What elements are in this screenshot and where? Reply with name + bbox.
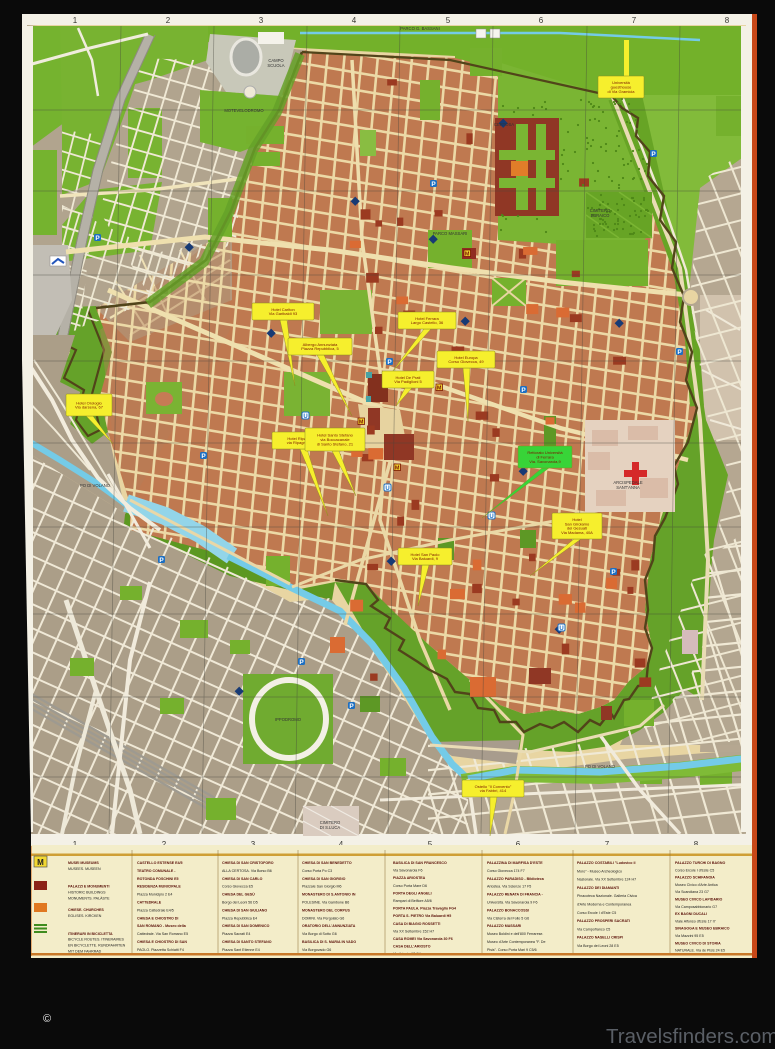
svg-text:Corso Porta Mare D6: Corso Porta Mare D6 — [393, 884, 427, 888]
svg-text:MONASTERO DI S.ANTONIO IN: MONASTERO DI S.ANTONIO IN — [302, 893, 356, 897]
svg-text:7: 7 — [632, 16, 637, 25]
svg-text:CHIESA E CHIOSTRO DI SAN: CHIESA E CHIOSTRO DI SAN — [137, 940, 187, 944]
svg-text:Via Baluardi, 9: Via Baluardi, 9 — [412, 556, 439, 561]
svg-text:MOTEVELODROMO: MOTEVELODROMO — [224, 108, 264, 113]
svg-text:8: 8 — [725, 16, 730, 25]
svg-text:CHIESA DI SANTO STEFANO: CHIESA DI SANTO STEFANO — [222, 940, 272, 944]
svg-text:HISTORIC BUILDINGS: HISTORIC BUILDINGS — [68, 891, 106, 895]
svg-text:Piazza Repubblica, 5: Piazza Repubblica, 5 — [301, 346, 339, 351]
svg-text:PARCO MASSARI: PARCO MASSARI — [433, 231, 468, 236]
svg-text:TEATRO COMUNALE -: TEATRO COMUNALE - — [137, 869, 176, 873]
svg-text:P: P — [95, 235, 100, 242]
svg-text:DI S.LUCA: DI S.LUCA — [320, 825, 341, 830]
svg-text:Piazza Sacrati E4: Piazza Sacrati E4 — [222, 932, 250, 936]
svg-text:CHIESE. CHURCHES: CHIESE. CHURCHES — [68, 908, 104, 912]
svg-text:Via Borgo dei Leoni 28 E5: Via Borgo dei Leoni 28 E5 — [577, 944, 619, 948]
svg-text:5: 5 — [446, 16, 451, 25]
svg-text:BASILICA DI S. MARIA IN VADO: BASILICA DI S. MARIA IN VADO — [302, 940, 356, 944]
svg-text:Via Garibaldi 93: Via Garibaldi 93 — [269, 311, 298, 316]
svg-text:CHIESA DEL GESÙ: CHIESA DEL GESÙ — [222, 892, 255, 897]
svg-text:©: © — [43, 1013, 51, 1025]
svg-text:PALAZZO TURCHI DI BAGNO: PALAZZO TURCHI DI BAGNO — [675, 861, 725, 865]
svg-text:DOMINI. Via Pergolato G6: DOMINI. Via Pergolato G6 — [302, 916, 344, 920]
svg-text:PO DI VOLANO: PO DI VOLANO — [80, 483, 111, 488]
svg-text:Museo d'Arte Contemporanea "F.: Museo d'Arte Contemporanea "F. De — [487, 940, 546, 944]
svg-text:Via Camposabbionario G7: Via Camposabbionario G7 — [675, 905, 717, 909]
svg-text:Ariostea. Via Scienze 17 F5: Ariostea. Via Scienze 17 F5 — [487, 885, 531, 889]
svg-text:CHIESA DI SAN DOMENICO: CHIESA DI SAN DOMENICO — [222, 924, 270, 928]
svg-text:MONUMENTS. PALÄSTE: MONUMENTS. PALÄSTE — [68, 896, 110, 900]
svg-text:P: P — [299, 659, 304, 666]
svg-text:ALLA CERTOSA. Via Borso B6: ALLA CERTOSA. Via Borso B6 — [222, 869, 272, 873]
svg-text:PALAZZINA DI MARFISA D'ESTE: PALAZZINA DI MARFISA D'ESTE — [487, 861, 543, 865]
svg-text:Piazzale San Giorgio M6: Piazzale San Giorgio M6 — [302, 885, 342, 889]
svg-text:Corso Ercole I d'Este C5: Corso Ercole I d'Este C5 — [675, 868, 714, 872]
svg-text:Moro" - Museo Archeologico: Moro" - Museo Archeologico — [577, 869, 622, 873]
svg-text:P: P — [387, 359, 392, 366]
svg-text:Museo Boldini e dell'800 Ferra: Museo Boldini e dell'800 Ferrarese. — [487, 932, 543, 936]
svg-text:1: 1 — [73, 16, 78, 25]
svg-text:SINAGOGA E MUSEO EBRAICO: SINAGOGA E MUSEO EBRAICO — [675, 927, 730, 931]
svg-text:P: P — [159, 557, 164, 564]
svg-text:MUSEES. MUSEEN: MUSEES. MUSEEN — [68, 867, 101, 871]
svg-text:CASA ROMEI Via Savonarola 30: CASA ROMEI Via Savonarola 30 F6 — [393, 937, 453, 941]
svg-text:PORTA S. PIETRO Via Baluardi: PORTA S. PIETRO Via Baluardi H5 — [393, 914, 451, 918]
svg-text:ITINERARI IN BICICLETTA: ITINERARI IN BICICLETTA — [68, 932, 113, 936]
svg-text:U: U — [489, 514, 493, 520]
svg-text:M: M — [359, 420, 364, 426]
svg-text:EBRAICO: EBRAICO — [591, 213, 611, 218]
svg-text:CHIESA DI SAN GIORGIO: CHIESA DI SAN GIORGIO — [302, 877, 346, 881]
svg-text:Rampari di Belfiore A5/6: Rampari di Belfiore A5/6 — [393, 899, 432, 903]
svg-text:Piazza Repubblica E4: Piazza Repubblica E4 — [222, 916, 257, 920]
svg-text:Via XX Settembre 152 H7: Via XX Settembre 152 H7 — [393, 929, 434, 933]
svg-text:PIAZZA ARIOSTEA: PIAZZA ARIOSTEA — [393, 876, 426, 880]
svg-text:Piazza Sant Etienne E4: Piazza Sant Etienne E4 — [222, 948, 260, 952]
svg-text:Largo Castello, 36: Largo Castello, 36 — [411, 320, 444, 325]
svg-text:Piazza Cattedrale E4/5: Piazza Cattedrale E4/5 — [137, 908, 174, 912]
svg-text:via Fabbri, 414: via Fabbri, 414 — [480, 788, 507, 793]
svg-text:PALAZZO BONACCOSSI: PALAZZO BONACCOSSI — [487, 908, 529, 912]
svg-text:Corso Porta Po C3: Corso Porta Po C3 — [302, 869, 332, 873]
svg-text:SCUOLA: SCUOLA — [267, 63, 284, 68]
svg-text:U: U — [385, 486, 389, 492]
svg-text:M: M — [37, 858, 44, 867]
svg-text:Corso Ercole I d'Este C5: Corso Ercole I d'Este C5 — [577, 911, 616, 915]
svg-text:CHIESA DI SAN GIULIANO: CHIESA DI SAN GIULIANO — [222, 908, 267, 912]
svg-text:CATTEDRALE: CATTEDRALE — [137, 901, 162, 905]
svg-text:PO DI VOLANO: PO DI VOLANO — [585, 764, 616, 769]
svg-text:3: 3 — [259, 16, 264, 25]
svg-text:PALAZZO COSTABILI "Ludovico il: PALAZZO COSTABILI "Ludovico il — [577, 861, 635, 865]
svg-text:P: P — [349, 703, 354, 710]
svg-text:MONASTERO DEL CORPUS: MONASTERO DEL CORPUS — [302, 908, 350, 912]
svg-text:Nazionale. Via XX Settembre 12: Nazionale. Via XX Settembre 124 H7 — [577, 878, 636, 882]
svg-text:CHIESA DI SAN CRISTOFORO: CHIESA DI SAN CRISTOFORO — [222, 861, 274, 865]
svg-text:Travelsfinders.com: Travelsfinders.com — [606, 1025, 775, 1044]
svg-text:EN BICYCLETTE. RUNDFAHRTEN: EN BICYCLETTE. RUNDFAHRTEN — [68, 944, 126, 948]
svg-text:PALAZZO SCHIFANOIA: PALAZZO SCHIFANOIA — [675, 876, 715, 880]
svg-text:di Santo Stefano, 21: di Santo Stefano, 21 — [317, 441, 354, 446]
svg-text:BICYCLE ROUTES. ITINERAIRES: BICYCLE ROUTES. ITINERAIRES — [68, 938, 125, 942]
svg-text:Via darsena, 67: Via darsena, 67 — [75, 405, 104, 410]
svg-text:M: M — [395, 466, 400, 472]
svg-text:PALAZZO PROSPERI SACRATI: PALAZZO PROSPERI SACRATI — [577, 919, 630, 923]
svg-text:Corso Giovecca 174 F7: Corso Giovecca 174 F7 — [487, 869, 525, 873]
svg-text:Borgo dei Leoni 56 D5: Borgo dei Leoni 56 D5 — [222, 901, 258, 905]
svg-text:P: P — [201, 453, 206, 460]
svg-text:PALAZZO NASELLI CRISPI: PALAZZO NASELLI CRISPI — [577, 936, 623, 940]
svg-text:d'Arte Moderna e Contemporanea: d'Arte Moderna e Contemporanea — [577, 903, 631, 907]
svg-text:U: U — [559, 626, 563, 632]
svg-text:CHIESA E CHIOSTRO DI: CHIESA E CHIOSTRO DI — [137, 916, 178, 920]
svg-text:Via Borgovado G6: Via Borgovado G6 — [302, 948, 331, 952]
svg-text:Corso Giovecca E5: Corso Giovecca E5 — [222, 885, 253, 889]
svg-text:MIT DEM FAHRRAD: MIT DEM FAHRRAD — [68, 950, 102, 954]
svg-text:CHIESA DI SAN CARLO: CHIESA DI SAN CARLO — [222, 877, 263, 881]
svg-text:NATURALE. Via de Pisis 24 E5: NATURALE. Via de Pisis 24 E5 — [675, 949, 725, 953]
svg-text:Pisis". Corso Porta Mari 9 C5: Pisis". Corso Porta Mari 9 C5/6 — [487, 948, 537, 952]
svg-text:Via Padiglioni 5: Via Padiglioni 5 — [394, 379, 422, 384]
svg-text:P: P — [651, 151, 656, 158]
svg-text:MUSEO CIVICO LAPIDARIO: MUSEO CIVICO LAPIDARIO — [675, 898, 723, 902]
svg-text:PAOLO. Piazzetta Schiatti F4: PAOLO. Piazzetta Schiatti F4 — [137, 948, 184, 952]
svg-text:Via Madama, 40A: Via Madama, 40A — [561, 530, 593, 535]
svg-text:Piazza Municipio 2 E4: Piazza Municipio 2 E4 — [137, 893, 172, 897]
svg-text:POLESINE. Via Gambone B6: POLESINE. Via Gambone B6 — [302, 901, 349, 905]
svg-text:PALAZZO MASSARI: PALAZZO MASSARI — [487, 924, 521, 928]
svg-text:PORTA PAULA. Piazza Travaglio: PORTA PAULA. Piazza Travaglio FG4 — [393, 907, 456, 911]
svg-text:Via Campofranco C5: Via Campofranco C5 — [577, 927, 610, 931]
svg-text:EGLISES. KIRCKEN: EGLISES. KIRCKEN — [68, 914, 102, 918]
svg-text:Corso Giovecca, 49: Corso Giovecca, 49 — [448, 359, 484, 364]
svg-text:M: M — [465, 252, 470, 258]
svg-text:RESIDENZA MUNICIPALE: RESIDENZA MUNICIPALE — [137, 885, 181, 889]
svg-text:SANT'ANNA: SANT'ANNA — [616, 485, 640, 490]
svg-text:CERTOSA: CERTOSA — [494, 122, 514, 127]
svg-text:PALAZZO RENATA DI FRANCIA -: PALAZZO RENATA DI FRANCIA - — [487, 893, 544, 897]
svg-text:IPPODROMO: IPPODROMO — [275, 717, 302, 722]
svg-text:PALAZZI E MONUMENTI: PALAZZI E MONUMENTI — [68, 885, 109, 889]
svg-text:PARCO G. BASSANI: PARCO G. BASSANI — [400, 26, 439, 31]
svg-text:Via Mazzini 95 E5: Via Mazzini 95 E5 — [675, 934, 704, 938]
svg-text:Pinacoteca Nazionale. Galleria: Pinacoteca Nazionale. Galleria Civica — [577, 894, 637, 898]
svg-text:PALAZZO PARADISO - Biblioteca: PALAZZO PARADISO - Biblioteca — [487, 877, 545, 881]
svg-text:ROTONDA FOSCHINI E5: ROTONDA FOSCHINI E5 — [137, 877, 179, 881]
svg-text:MUSEO CIVICO DI STORIA: MUSEO CIVICO DI STORIA — [675, 941, 721, 945]
svg-text:Cattedrale. Via San Romano E5: Cattedrale. Via San Romano E5 — [137, 932, 188, 936]
svg-text:4: 4 — [352, 16, 357, 25]
svg-text:Via Cisterra del Follo 5 G6: Via Cisterra del Follo 5 G6 — [487, 916, 529, 920]
svg-text:CASA DI BIAGIO ROSSETTI: CASA DI BIAGIO ROSSETTI — [393, 922, 440, 926]
svg-text:Università. Via Savonarola 9: Università. Via Savonarola 9 F6 — [487, 901, 537, 905]
svg-text:PORTA DEGLI ANGELI: PORTA DEGLI ANGELI — [393, 891, 432, 895]
svg-text:Via. Savonarola,9: Via. Savonarola,9 — [529, 459, 561, 464]
svg-text:CASA DELL'ARIOSTO: CASA DELL'ARIOSTO — [393, 945, 431, 949]
svg-text:MUSEI MUSEUMS: MUSEI MUSEUMS — [68, 861, 99, 865]
svg-text:BASILICA DI SAN FRANCESCO: BASILICA DI SAN FRANCESCO — [393, 861, 447, 865]
svg-text:P: P — [611, 569, 616, 576]
svg-text:6: 6 — [539, 16, 544, 25]
svg-text:M: M — [437, 386, 442, 392]
svg-text:2: 2 — [166, 16, 171, 25]
svg-text:PALAZZO DEI DIAMANTI: PALAZZO DEI DIAMANTI — [577, 886, 619, 890]
svg-text:Via Scandiana 23 G7: Via Scandiana 23 G7 — [675, 890, 709, 894]
svg-text:Via Savonarola F6: Via Savonarola F6 — [393, 869, 423, 873]
svg-text:Via Borgo di Sotto G6: Via Borgo di Sotto G6 — [302, 932, 337, 936]
svg-text:ORATORIO DELL'ANNUNZIATA: ORATORIO DELL'ANNUNZIATA — [302, 924, 356, 928]
svg-text:P: P — [431, 181, 436, 188]
svg-text:di Via Gramicia: di Via Gramicia — [607, 89, 635, 94]
svg-text:EX BAGNI DUCALI: EX BAGNI DUCALI — [675, 912, 707, 916]
svg-text:Viale Alfonso d'Este 17 I7: Viale Alfonso d'Este 17 I7 — [675, 919, 716, 923]
svg-text:Museo Civico d'Arte Antica: Museo Civico d'Arte Antica — [675, 883, 718, 887]
svg-text:SAN ROMANO - Museo della: SAN ROMANO - Museo della — [137, 924, 187, 928]
svg-text:P: P — [677, 349, 682, 356]
svg-text:P: P — [521, 387, 526, 394]
svg-text:U: U — [303, 414, 307, 420]
svg-text:CASTELLO ESTENSE E4/5: CASTELLO ESTENSE E4/5 — [137, 861, 183, 865]
svg-text:CHIESA DI SAN BENEDETTO: CHIESA DI SAN BENEDETTO — [302, 861, 352, 865]
